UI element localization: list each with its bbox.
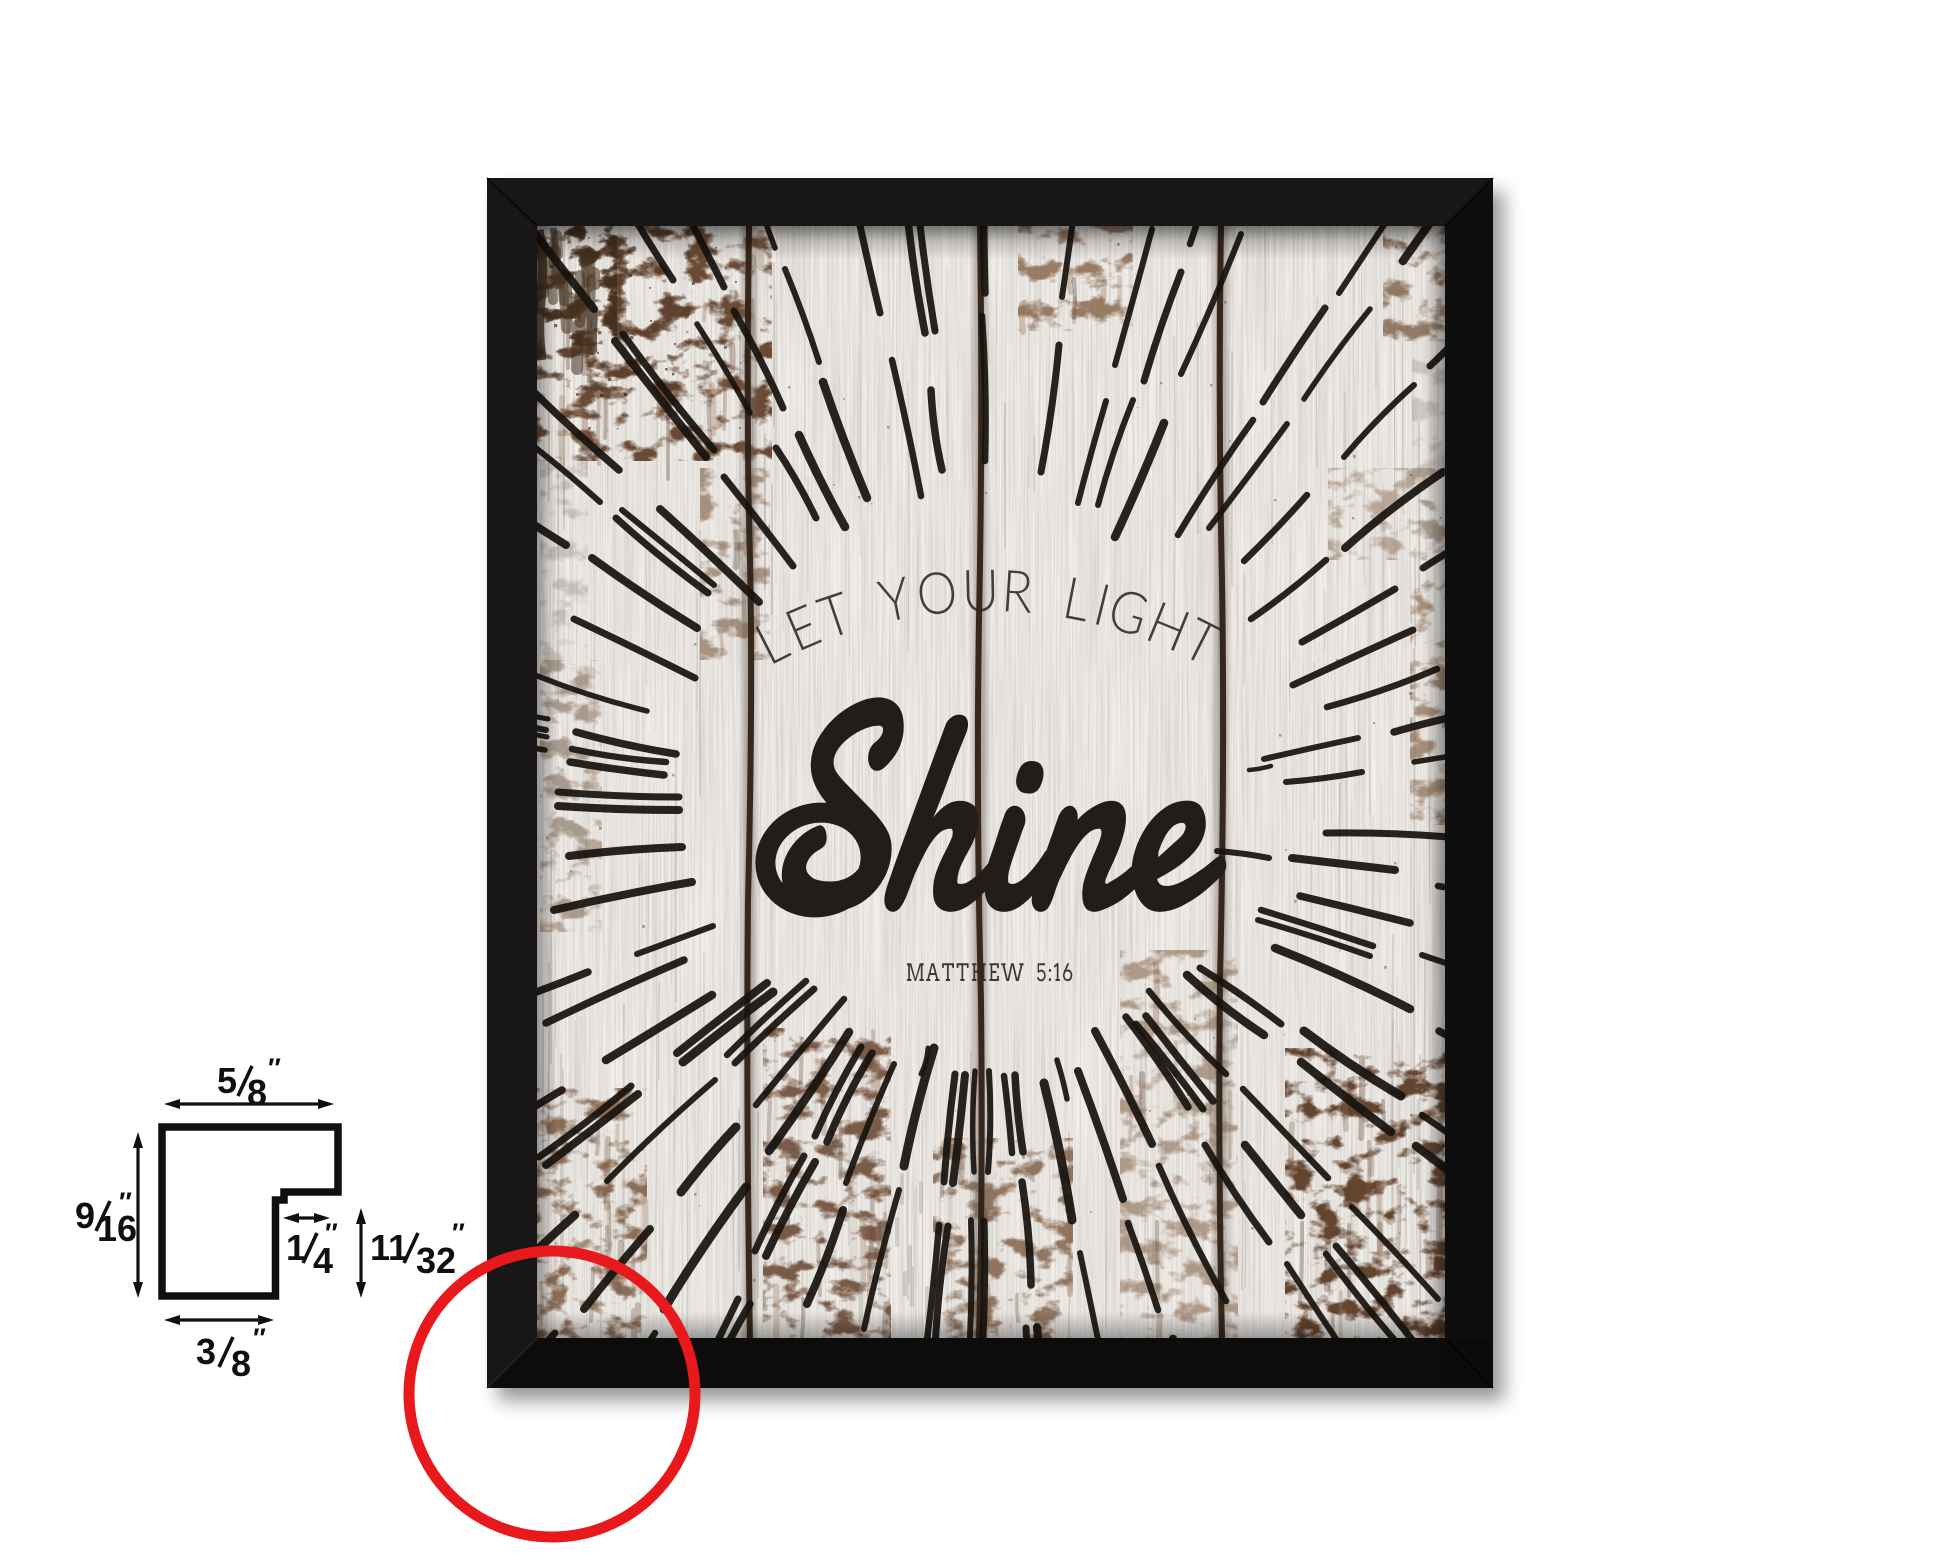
svg-text:8: 8 xyxy=(231,1343,251,1384)
svg-text:″: ″ xyxy=(268,1053,281,1083)
svg-text:3: 3 xyxy=(196,1331,216,1372)
svg-text:″: ″ xyxy=(325,1218,338,1248)
svg-text:32: 32 xyxy=(416,1240,456,1281)
svg-text:″: ″ xyxy=(119,1187,132,1217)
svg-text:9: 9 xyxy=(75,1195,95,1236)
svg-text:″: ″ xyxy=(253,1323,266,1353)
svg-text:8: 8 xyxy=(247,1072,267,1113)
svg-text:″: ″ xyxy=(452,1218,465,1248)
svg-text:5: 5 xyxy=(217,1060,237,1101)
svg-text:11: 11 xyxy=(370,1227,408,1268)
